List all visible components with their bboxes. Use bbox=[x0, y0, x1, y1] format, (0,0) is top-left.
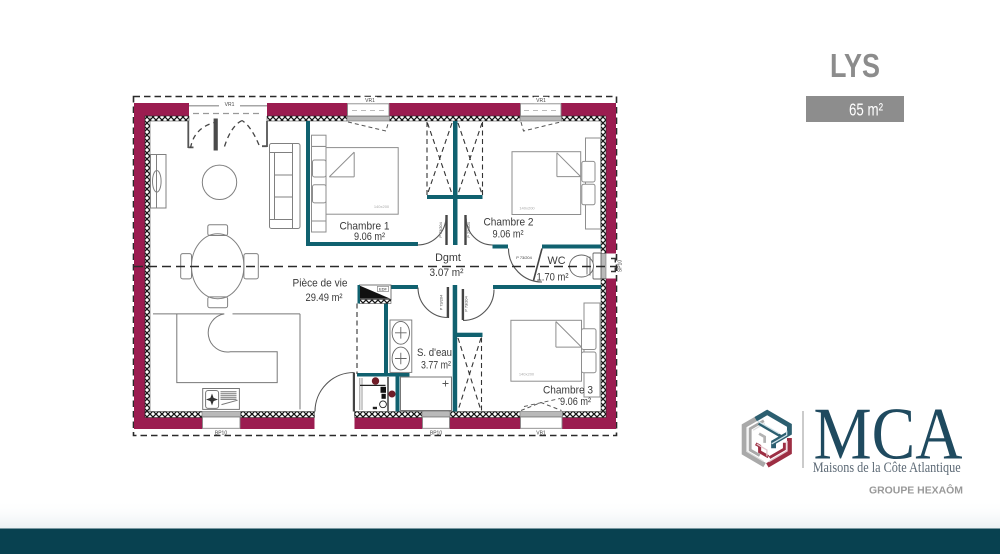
svg-text:1.70 m²: 1.70 m² bbox=[537, 272, 569, 284]
svg-text:EDF: EDF bbox=[379, 287, 388, 292]
svg-text:Maisons de la Côte Atlantique: Maisons de la Côte Atlantique bbox=[813, 460, 961, 476]
svg-text:P 73/204: P 73/204 bbox=[516, 255, 532, 260]
svg-text:BP10: BP10 bbox=[430, 431, 442, 437]
svg-text:3.07 m²: 3.07 m² bbox=[430, 267, 464, 279]
svg-text:9.06 m²: 9.06 m² bbox=[560, 396, 591, 408]
svg-text:VB1: VB1 bbox=[536, 431, 546, 437]
svg-text:Dgmt: Dgmt bbox=[435, 252, 461, 264]
svg-text:VR1: VR1 bbox=[536, 98, 546, 104]
svg-text:GROUPE HEXAÔM: GROUPE HEXAÔM bbox=[869, 484, 963, 497]
svg-text:S. d'eau: S. d'eau bbox=[417, 347, 452, 359]
svg-text:LYS: LYS bbox=[830, 47, 880, 84]
svg-text:VR1: VR1 bbox=[365, 98, 375, 104]
svg-text:9.06 m²: 9.06 m² bbox=[354, 231, 385, 243]
svg-text:140x200: 140x200 bbox=[374, 204, 390, 209]
svg-text:140x200: 140x200 bbox=[519, 206, 535, 211]
svg-text:140x200: 140x200 bbox=[519, 372, 535, 377]
svg-text:9.06 m²: 9.06 m² bbox=[493, 229, 524, 241]
svg-text:Pièce de vie: Pièce de vie bbox=[293, 278, 348, 290]
svg-text:VR1: VR1 bbox=[225, 102, 235, 108]
svg-text:Chambre 3: Chambre 3 bbox=[543, 385, 593, 397]
svg-text:3.77 m²: 3.77 m² bbox=[421, 360, 451, 372]
svg-text:WC: WC bbox=[548, 255, 566, 267]
svg-text:Chambre 2: Chambre 2 bbox=[484, 217, 534, 229]
svg-text:65 m²: 65 m² bbox=[849, 100, 883, 120]
svg-text:SP10: SP10 bbox=[618, 260, 624, 272]
svg-text:29.49 m²: 29.49 m² bbox=[306, 292, 343, 304]
svg-text:P 73/204: P 73/204 bbox=[439, 294, 444, 310]
svg-text:BP10: BP10 bbox=[215, 431, 227, 437]
svg-text:P 73/204: P 73/204 bbox=[464, 295, 469, 311]
